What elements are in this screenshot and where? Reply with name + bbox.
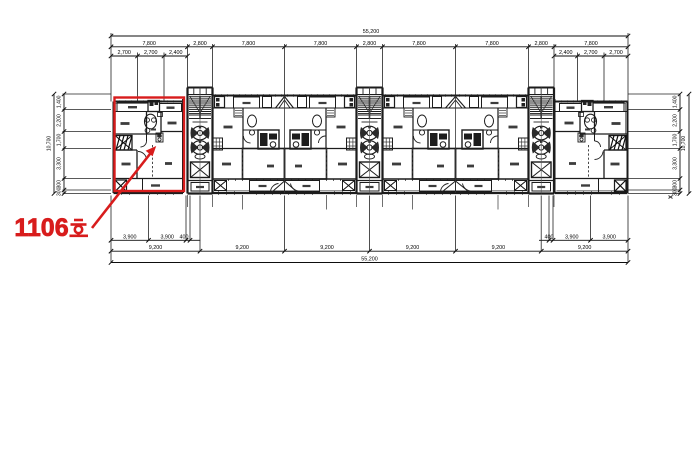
svg-text:2,700: 2,700: [584, 50, 598, 56]
svg-text:2,800: 2,800: [363, 41, 377, 47]
svg-text:300: 300: [673, 180, 679, 189]
svg-text:55,200: 55,200: [361, 257, 378, 263]
svg-text:7,800: 7,800: [314, 41, 328, 47]
svg-text:10,700: 10,700: [681, 136, 687, 152]
svg-text:2,700: 2,700: [609, 50, 623, 56]
svg-text:9,200: 9,200: [578, 245, 592, 251]
svg-text:1,400: 1,400: [673, 95, 679, 108]
svg-text:3,900: 3,900: [602, 234, 616, 240]
svg-text:2,200: 2,200: [673, 114, 679, 127]
svg-text:9,200: 9,200: [235, 245, 249, 251]
svg-text:9,200: 9,200: [149, 245, 163, 251]
svg-text:7,800: 7,800: [242, 41, 256, 47]
svg-text:300: 300: [57, 187, 63, 196]
svg-text:2,800: 2,800: [193, 41, 207, 47]
svg-text:7,800: 7,800: [485, 41, 499, 47]
svg-text:3,900: 3,900: [565, 234, 579, 240]
svg-text:2,700: 2,700: [144, 50, 158, 56]
svg-text:7,800: 7,800: [142, 41, 156, 47]
svg-text:3,900: 3,900: [123, 234, 137, 240]
svg-text:1,400: 1,400: [57, 95, 63, 108]
svg-text:7,800: 7,800: [584, 41, 598, 47]
svg-text:2,700: 2,700: [117, 50, 131, 56]
svg-text:9,200: 9,200: [406, 245, 420, 251]
svg-text:2,400: 2,400: [559, 50, 573, 56]
svg-text:9,200: 9,200: [492, 245, 506, 251]
svg-text:3,300: 3,300: [673, 157, 679, 170]
svg-text:9,200: 9,200: [320, 245, 334, 251]
svg-text:1106: 1106: [14, 214, 68, 242]
svg-text:10,700: 10,700: [47, 136, 53, 152]
svg-text:300: 300: [57, 180, 63, 189]
svg-text:3,300: 3,300: [57, 157, 63, 170]
svg-text:2,400: 2,400: [169, 50, 183, 56]
svg-text:3,900: 3,900: [160, 234, 174, 240]
svg-text:2,800: 2,800: [534, 41, 548, 47]
svg-text:7,800: 7,800: [412, 41, 426, 47]
svg-text:300: 300: [673, 187, 679, 196]
svg-text:1,700: 1,700: [57, 134, 63, 147]
svg-text:2,200: 2,200: [57, 114, 63, 127]
svg-text:1,700: 1,700: [673, 134, 679, 147]
svg-text:55,200: 55,200: [363, 29, 380, 35]
